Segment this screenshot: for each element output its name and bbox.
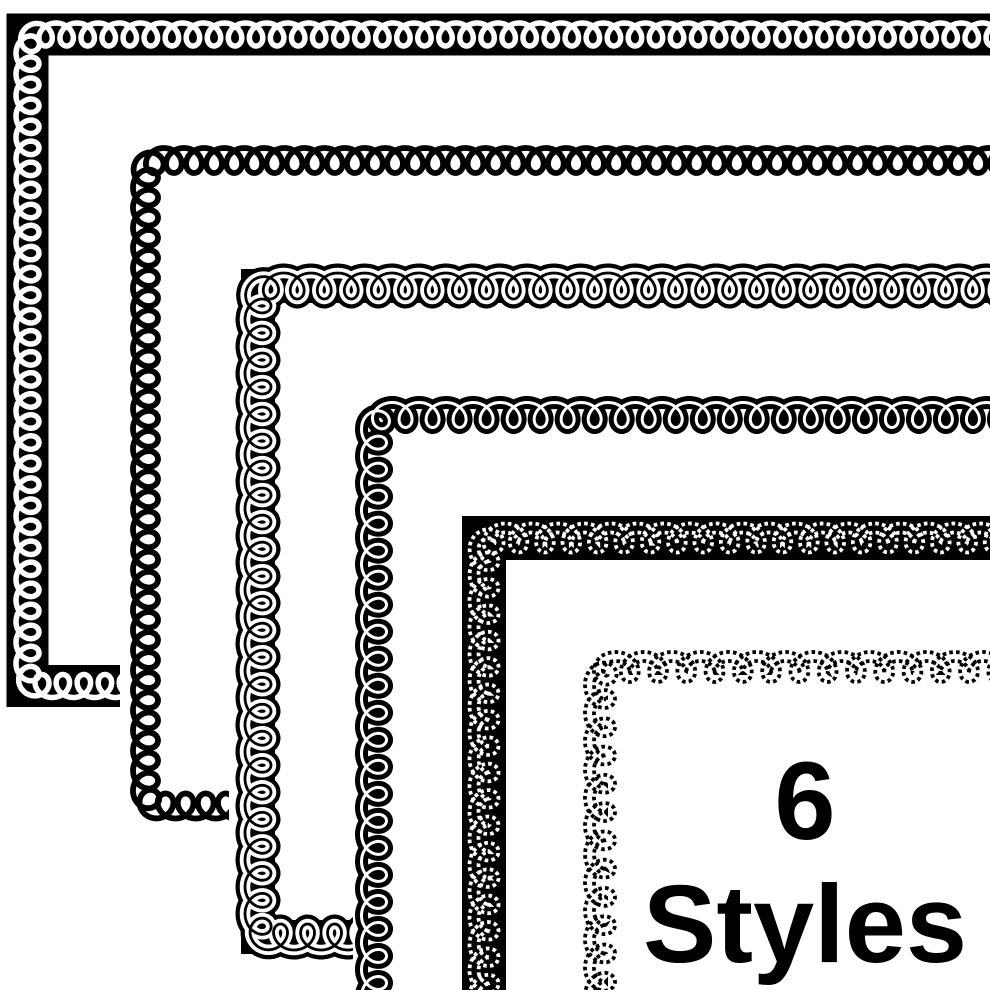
clipart-preview: 6 Styles (0, 0, 990, 990)
styles-count-label: Styles (640, 863, 970, 986)
styles-count-number: 6 (640, 740, 970, 863)
styles-count-badge: 6 Styles (640, 740, 970, 986)
